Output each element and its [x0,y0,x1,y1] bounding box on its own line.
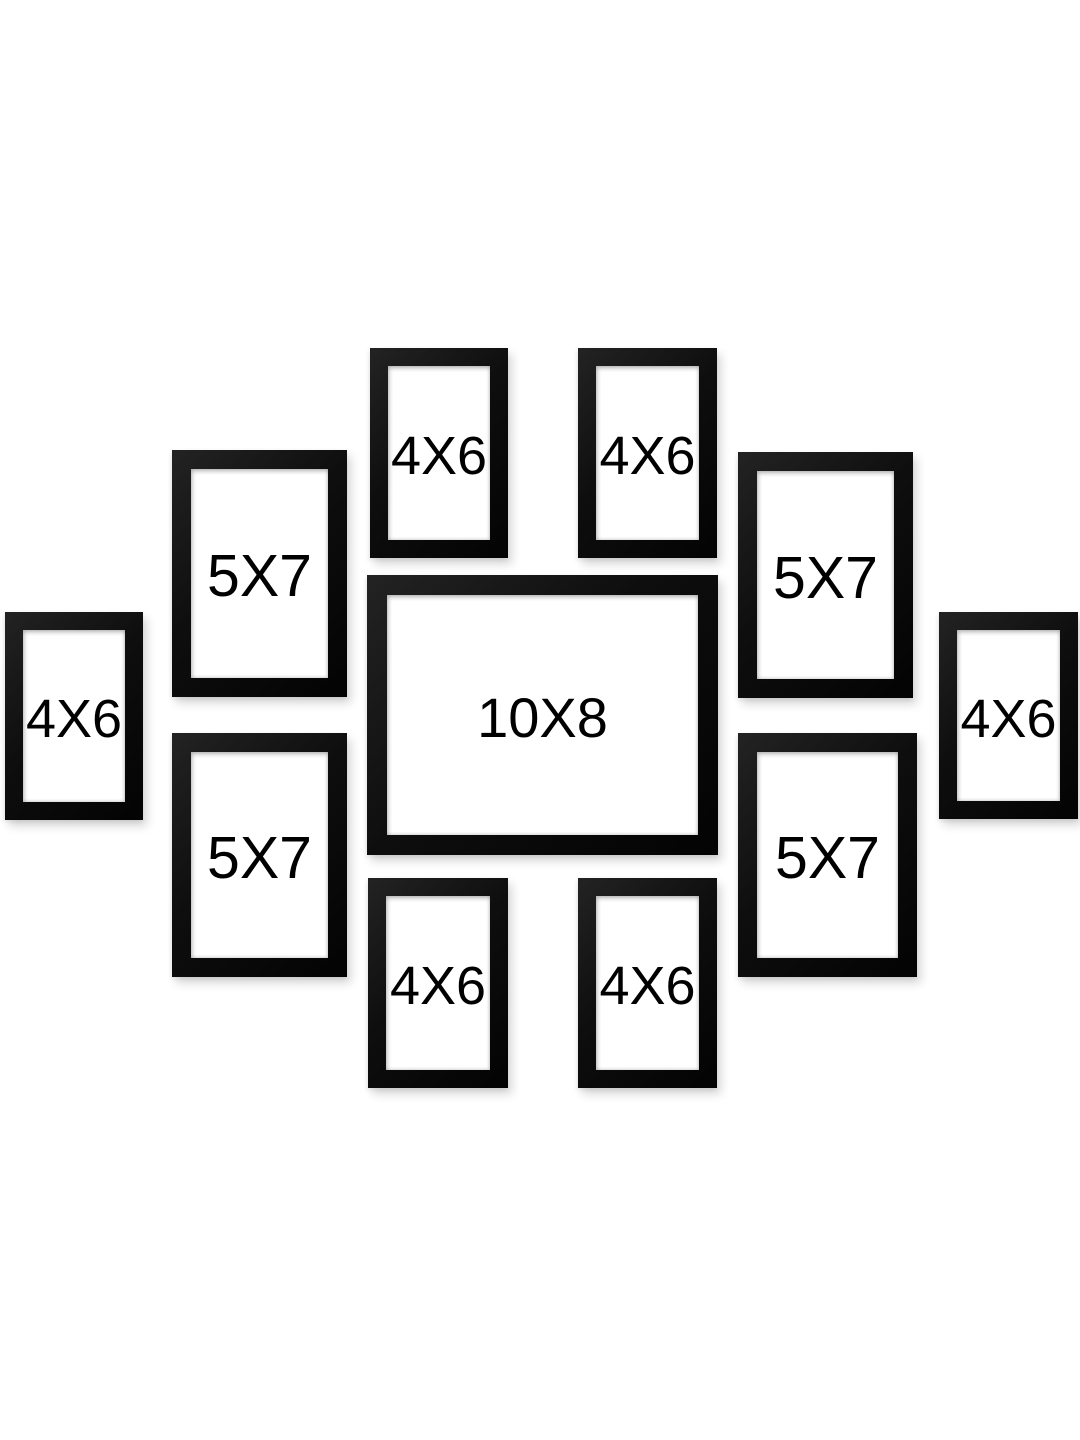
frame-matte: 4X6 [596,896,699,1070]
frame-matte: 4X6 [386,896,490,1070]
frame-collage: 4X64X65X75X710X84X64X65X75X74X64X6 [0,0,1080,1440]
photo-frame-bottom-left-4x6: 4X6 [368,878,508,1088]
frame-size-label: 5X7 [775,829,880,888]
frame-matte: 5X7 [757,752,898,958]
frame-size-label: 4X6 [599,429,695,483]
frame-matte: 4X6 [23,630,125,802]
frame-matte: 4X6 [957,630,1060,801]
frame-size-label: 4X6 [599,959,695,1013]
frame-matte: 4X6 [596,366,699,540]
frame-matte: 10X8 [387,595,698,835]
frame-size-label: 4X6 [390,959,486,1013]
photo-frame-right-upper-5x7: 5X7 [738,452,913,698]
photo-frame-far-left-4x6: 4X6 [5,612,143,820]
frame-size-label: 5X7 [207,829,312,888]
frame-matte: 5X7 [191,469,328,678]
frame-size-label: 5X7 [773,549,878,608]
frame-size-label: 10X8 [477,690,608,746]
photo-frame-left-upper-5x7: 5X7 [172,450,347,697]
frame-matte: 5X7 [191,752,328,958]
photo-frame-left-lower-5x7: 5X7 [172,733,347,977]
frame-size-label: 4X6 [391,429,487,483]
frame-size-label: 5X7 [207,547,312,606]
photo-frame-top-right-4x6: 4X6 [578,348,717,558]
photo-frame-center-10x8: 10X8 [367,575,718,855]
photo-frame-top-left-4x6: 4X6 [370,348,508,558]
frame-matte: 5X7 [757,471,894,679]
frame-size-label: 4X6 [960,692,1056,746]
photo-frame-right-lower-5x7: 5X7 [738,733,917,977]
frame-matte: 4X6 [388,366,490,540]
photo-frame-bottom-right-4x6: 4X6 [578,878,717,1088]
frame-size-label: 4X6 [26,692,122,746]
photo-frame-far-right-4x6: 4X6 [939,612,1078,819]
